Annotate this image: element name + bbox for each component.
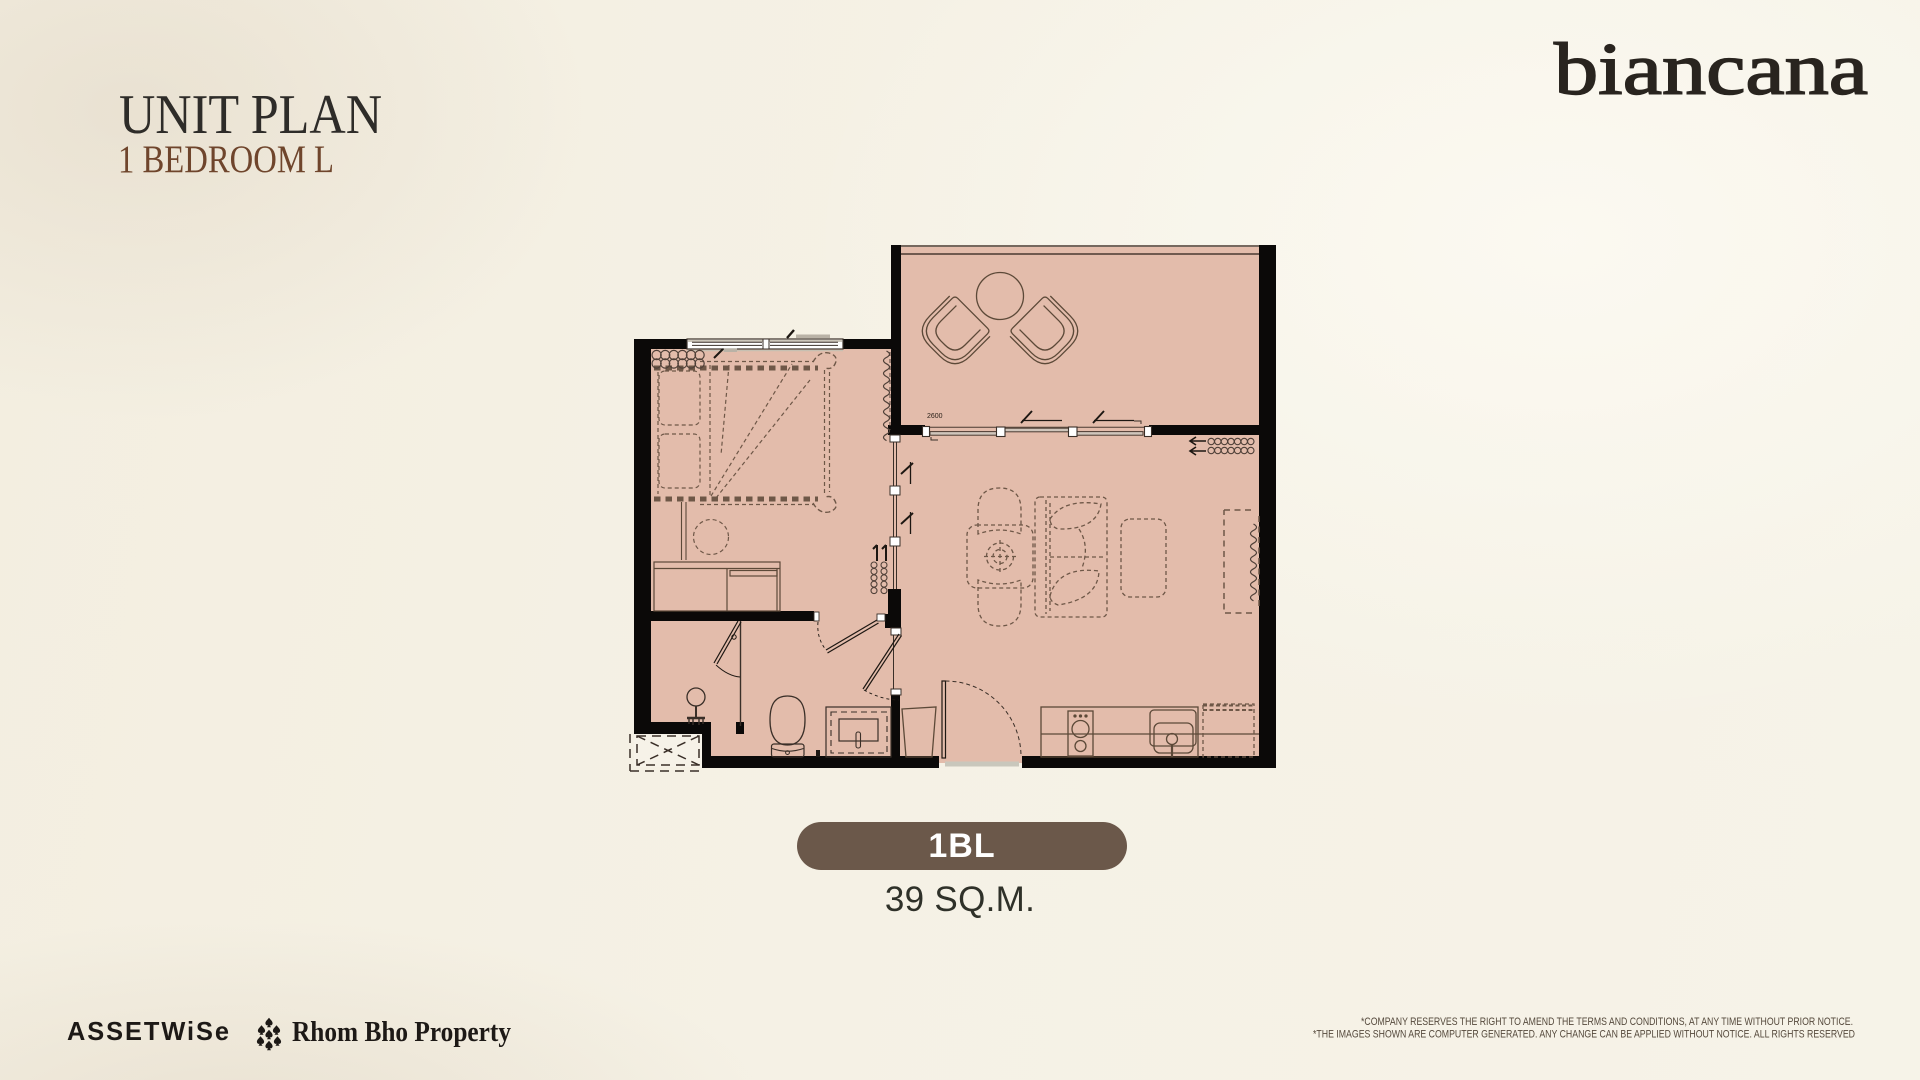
svg-text:Rhom Bho Property: Rhom Bho Property	[292, 1016, 511, 1048]
svg-text:2600: 2600	[927, 413, 943, 420]
svg-text:*COMPANY RESERVES THE RIGHT TO: *COMPANY RESERVES THE RIGHT TO AMEND THE…	[1361, 1016, 1853, 1028]
svg-text:UNIT PLAN: UNIT PLAN	[119, 84, 382, 146]
svg-text:1BL: 1BL	[928, 827, 995, 865]
svg-text:39 SQ.M.: 39 SQ.M.	[885, 880, 1035, 919]
svg-text:ASSETWiSe: ASSETWiSe	[67, 1016, 231, 1046]
svg-text:biancana: biancana	[1554, 29, 1868, 111]
svg-text:*THE IMAGES SHOWN ARE COMPUTER: *THE IMAGES SHOWN ARE COMPUTER GENERATED…	[1313, 1029, 1855, 1041]
svg-text:1 BEDROOM L: 1 BEDROOM L	[118, 138, 334, 181]
